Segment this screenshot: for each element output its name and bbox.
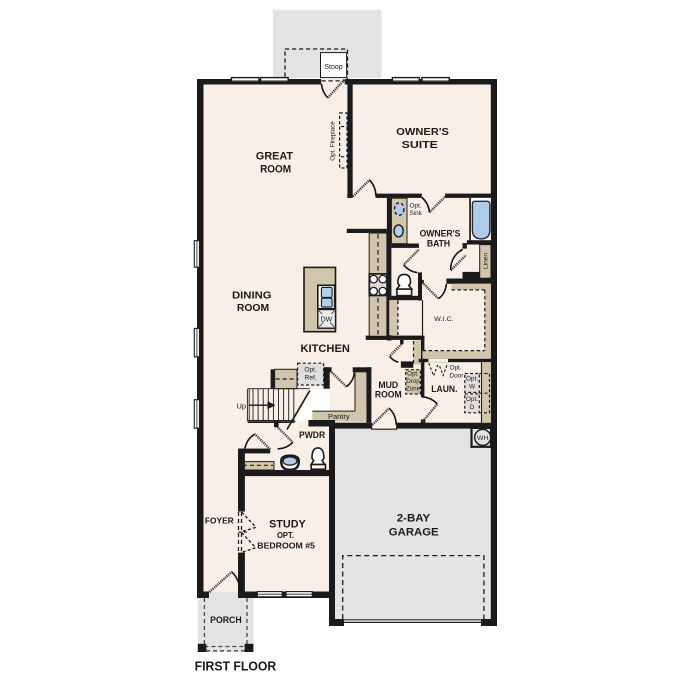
svg-text:GREAT: GREAT <box>256 151 293 163</box>
svg-text:SUITE: SUITE <box>402 140 438 151</box>
svg-text:PWDR: PWDR <box>299 430 326 440</box>
svg-text:STUDY: STUDY <box>269 519 306 531</box>
svg-text:W: W <box>469 384 476 391</box>
svg-text:D: D <box>470 404 475 411</box>
svg-text:Opt.: Opt. <box>466 396 478 403</box>
svg-text:FOYER: FOYER <box>205 516 234 526</box>
svg-text:ROOM: ROOM <box>260 164 291 176</box>
svg-text:Stoop: Stoop <box>324 64 342 71</box>
svg-text:Linen: Linen <box>483 253 490 269</box>
svg-text:Opt. Fireplace: Opt. Fireplace <box>330 121 337 161</box>
svg-text:Opt.: Opt. <box>304 367 317 374</box>
svg-text:GARAGE: GARAGE <box>389 527 439 539</box>
svg-text:Ref.: Ref. <box>305 375 317 382</box>
svg-text:KITCHEN: KITCHEN <box>301 343 350 355</box>
svg-text:LAUN.: LAUN. <box>431 384 457 394</box>
svg-text:BATH: BATH <box>427 239 450 249</box>
svg-text:ROOM: ROOM <box>375 390 402 400</box>
svg-text:W.I.C.: W.I.C. <box>434 316 454 323</box>
svg-text:WH: WH <box>477 435 488 442</box>
svg-text:OWNER'S: OWNER'S <box>420 228 461 238</box>
svg-text:Opt.: Opt. <box>410 203 422 210</box>
svg-text:Opt.: Opt. <box>450 365 462 372</box>
svg-text:Zone: Zone <box>406 386 421 393</box>
svg-text:2-BAY: 2-BAY <box>397 512 431 524</box>
svg-text:Opt.: Opt. <box>466 376 478 383</box>
svg-text:ROOM: ROOM <box>237 303 269 314</box>
svg-text:Sink: Sink <box>410 210 423 217</box>
svg-text:Door: Door <box>450 372 465 379</box>
svg-text:Drop: Drop <box>406 378 420 385</box>
svg-text:Pantry: Pantry <box>328 412 350 421</box>
svg-text:Up: Up <box>237 402 247 411</box>
svg-text:FIRST FLOOR: FIRST FLOOR <box>195 659 277 674</box>
svg-text:DINING: DINING <box>232 291 272 302</box>
svg-text:OPT.: OPT. <box>277 531 294 540</box>
svg-text:Opt.: Opt. <box>407 371 419 378</box>
svg-text:DW: DW <box>321 317 333 324</box>
svg-text:OWNER'S: OWNER'S <box>396 127 449 138</box>
svg-text:BEDROOM #5: BEDROOM #5 <box>257 540 315 550</box>
svg-text:MUD: MUD <box>378 380 398 390</box>
svg-text:PORCH: PORCH <box>210 615 242 625</box>
